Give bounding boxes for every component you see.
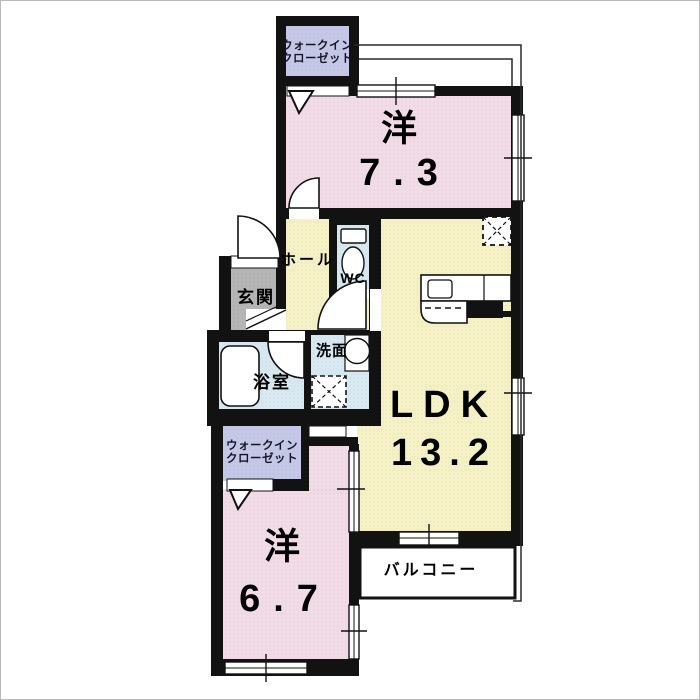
ldk-door-opening <box>370 289 381 331</box>
ldk-label: LDK <box>390 384 498 428</box>
walk-in-closet-1-label: ウォークイン クローゼット <box>281 40 353 66</box>
door-arc-entrance <box>238 216 280 258</box>
wall-segment <box>273 479 304 491</box>
wc-label: WC <box>340 270 365 286</box>
wall-segment <box>286 208 513 219</box>
sink-icon <box>345 339 370 364</box>
wall-segment <box>211 421 223 676</box>
floor-plan-image: ウォークイン クローゼット 洋 7.3 ホール WC 玄関 浴室 洗面 LDK … <box>0 0 700 700</box>
storage-niche <box>309 426 346 437</box>
wall-segment <box>311 330 369 335</box>
western-room-1-label: 洋 <box>381 107 417 148</box>
floor-texture <box>309 446 349 494</box>
kitchen-peninsula-icon <box>421 301 467 323</box>
wall-segment <box>284 76 349 86</box>
hall-label: ホール <box>281 251 335 268</box>
western-room-1-size: 7.3 <box>359 152 451 196</box>
toilet-tank-icon <box>341 229 366 243</box>
balcony-label: バルコニー <box>384 562 479 580</box>
refrigerator-space-icon <box>483 217 511 245</box>
door-opening <box>289 208 319 219</box>
floor-texture <box>223 489 349 659</box>
walk-in-closet-2-label-line2: クローゼット <box>226 453 298 466</box>
wall-segment <box>304 330 311 421</box>
floor-texture <box>357 426 381 531</box>
bathroom-label: 浴室 <box>253 373 291 393</box>
floor-texture <box>381 219 511 531</box>
western-room-2-label: 洋 <box>264 525 300 566</box>
walk-in-closet-1-label-line1: ウォークイン <box>281 40 353 53</box>
walk-in-closet-1-label-line2: クローゼット <box>281 53 353 66</box>
ldk-size: 13.2 <box>391 432 497 476</box>
bath-door-opening <box>269 331 305 341</box>
wall-segment <box>219 256 231 342</box>
kitchen-sink-icon <box>428 280 452 298</box>
entrance-label: 玄関 <box>237 288 275 308</box>
western-room-2-size: 6.7 <box>239 578 331 622</box>
floor-plan-svg <box>1 1 700 700</box>
wall-segment <box>276 16 359 26</box>
kitchen-range-icon <box>497 311 513 317</box>
walk-in-closet-2-label: ウォークイン クローゼット <box>226 440 298 466</box>
washroom-label: 洗面 <box>316 342 348 359</box>
eaves-outline-inner-line <box>359 59 512 86</box>
wall-segment <box>207 409 381 426</box>
walk-in-closet-2-label-line1: ウォークイン <box>226 440 298 453</box>
wall-segment <box>337 217 373 225</box>
